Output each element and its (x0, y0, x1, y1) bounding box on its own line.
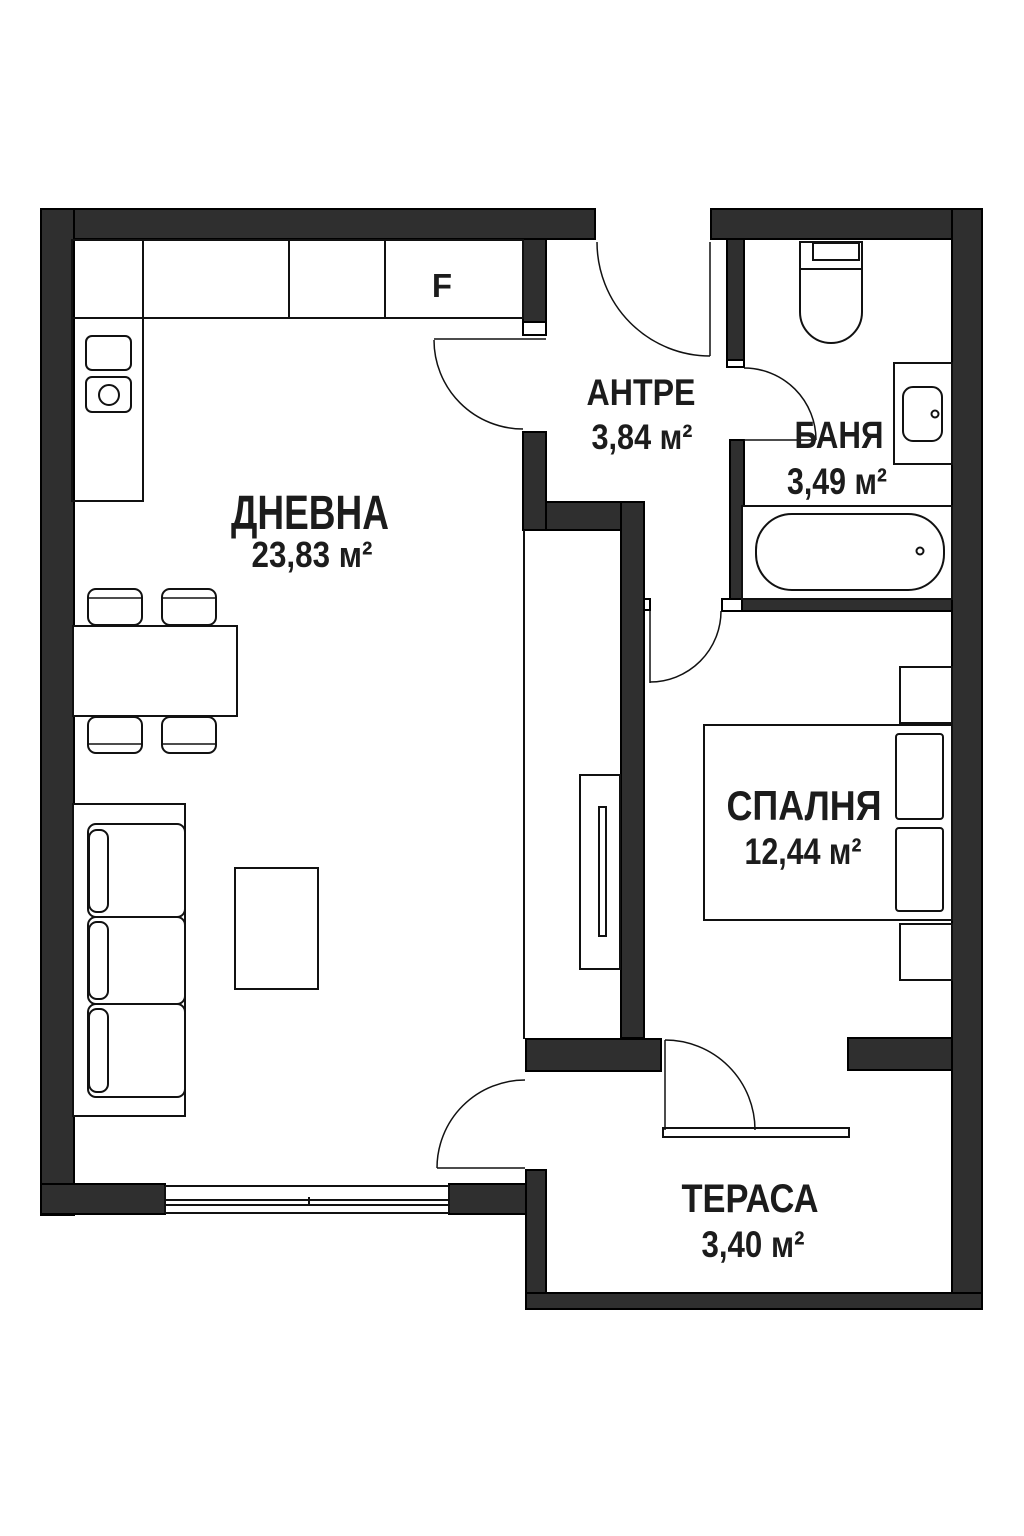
svg-text:3,84 м²: 3,84 м² (592, 418, 693, 457)
svg-text:23,83 м²: 23,83 м² (252, 534, 373, 575)
svg-text:АНТРЕ: АНТРЕ (587, 372, 696, 413)
svg-text:ДНЕВНА: ДНЕВНА (231, 487, 389, 540)
svg-text:СПАЛНЯ: СПАЛНЯ (727, 782, 882, 829)
svg-text:12,44 м²: 12,44 м² (745, 831, 862, 872)
svg-text:F: F (432, 267, 452, 304)
svg-text:3,49 м²: 3,49 м² (787, 461, 887, 502)
svg-text:3,40 м²: 3,40 м² (702, 1224, 805, 1265)
svg-text:ТЕРАСА: ТЕРАСА (682, 1177, 819, 1221)
svg-text:БАНЯ: БАНЯ (795, 415, 884, 457)
